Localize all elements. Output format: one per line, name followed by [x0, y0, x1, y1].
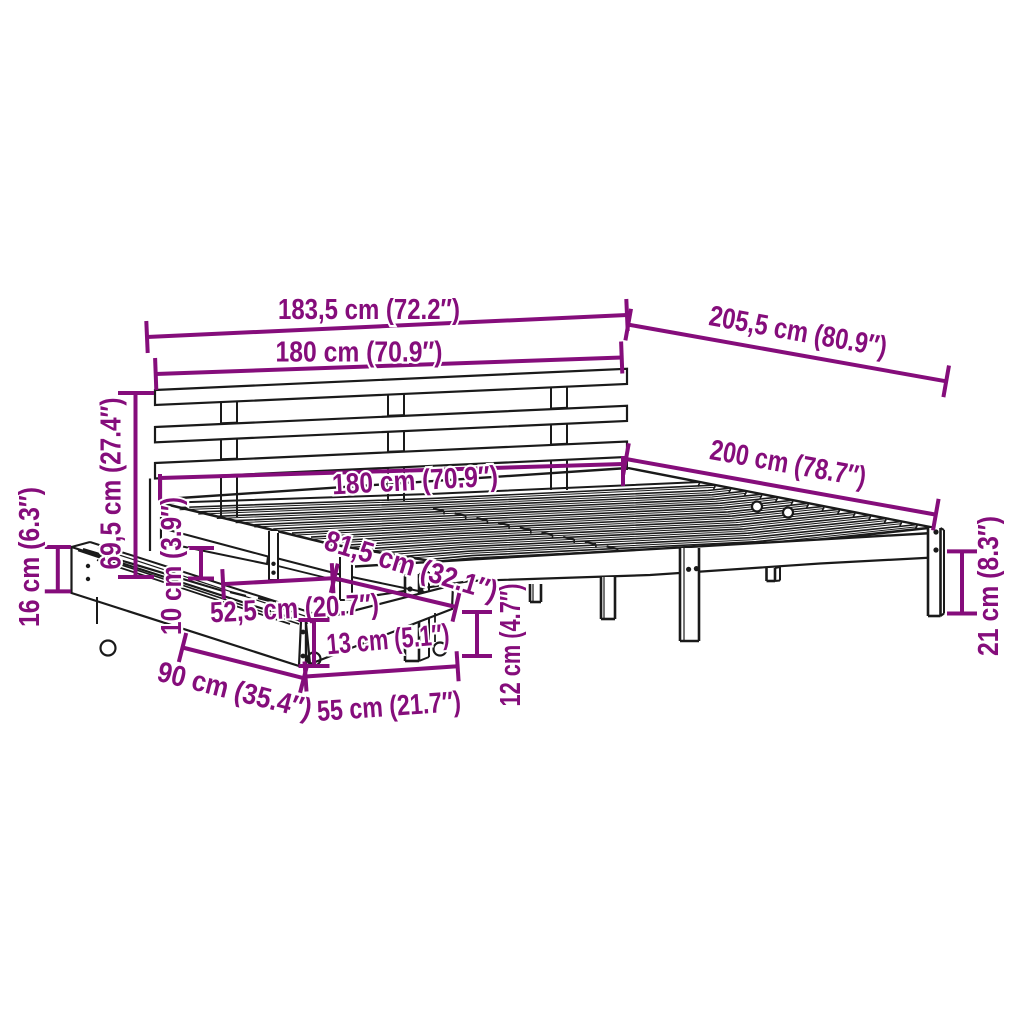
- svg-text:55 cm (21.7″): 55 cm (21.7″): [316, 686, 462, 728]
- svg-text:183,5 cm (72.2″): 183,5 cm (72.2″): [278, 294, 460, 326]
- svg-text:16 cm (6.3″): 16 cm (6.3″): [14, 487, 46, 627]
- svg-text:90 cm (35.4″): 90 cm (35.4″): [154, 656, 315, 726]
- svg-text:180 cm (70.9″): 180 cm (70.9″): [276, 337, 443, 369]
- svg-text:21 cm (8.3″): 21 cm (8.3″): [973, 516, 1005, 656]
- svg-text:12 cm (4.7″): 12 cm (4.7″): [495, 584, 527, 707]
- svg-text:69,5 cm (27.4″): 69,5 cm (27.4″): [96, 398, 128, 570]
- svg-text:10 cm (3.9″): 10 cm (3.9″): [156, 497, 188, 635]
- svg-text:200 cm (78.7″): 200 cm (78.7″): [707, 434, 868, 493]
